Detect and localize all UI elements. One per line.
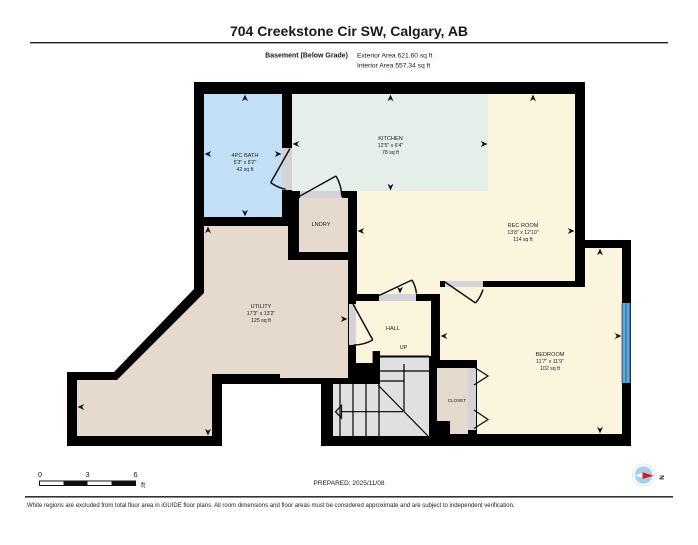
svg-text:13'8" x 12'10": 13'8" x 12'10" xyxy=(507,230,538,236)
svg-text:17'3" x 13'2": 17'3" x 13'2" xyxy=(247,311,276,317)
svg-text:BEDROOM: BEDROOM xyxy=(536,352,565,358)
svg-text:42 sq ft: 42 sq ft xyxy=(236,167,254,173)
svg-text:12'5" x 6'4": 12'5" x 6'4" xyxy=(378,143,404,149)
svg-text:PREPARED: 2025/11/08: PREPARED: 2025/11/08 xyxy=(314,480,385,487)
svg-text:3: 3 xyxy=(85,470,89,479)
svg-text:UTILITY: UTILITY xyxy=(251,304,272,310)
svg-text:HALL: HALL xyxy=(386,326,400,332)
svg-text:CLOSET: CLOSET xyxy=(448,398,467,403)
svg-text:0: 0 xyxy=(38,470,42,479)
svg-text:114 sq ft: 114 sq ft xyxy=(513,237,533,243)
svg-text:102 sq ft: 102 sq ft xyxy=(540,366,560,372)
svg-text:UP: UP xyxy=(400,345,408,351)
svg-text:11'7" x 11'9": 11'7" x 11'9" xyxy=(536,359,564,365)
svg-text:5'3" x 8'2": 5'3" x 8'2" xyxy=(234,160,257,166)
svg-text:704 Creekstone Cir SW, Calgary: 704 Creekstone Cir SW, Calgary, AB xyxy=(230,23,468,39)
svg-text:REC ROOM: REC ROOM xyxy=(508,223,539,229)
svg-text:ft: ft xyxy=(141,481,146,490)
svg-text:LNDRY: LNDRY xyxy=(312,222,331,228)
svg-text:N: N xyxy=(658,475,665,480)
svg-text:125 sq ft: 125 sq ft xyxy=(251,318,271,324)
svg-text:4PC BATH: 4PC BATH xyxy=(232,153,259,159)
svg-text:Basement (Below Grade): Basement (Below Grade) xyxy=(265,53,348,60)
svg-text:Interior Area 557.34 sq ft: Interior Area 557.34 sq ft xyxy=(357,63,430,70)
svg-text:78 sq ft: 78 sq ft xyxy=(382,150,400,156)
svg-text:6: 6 xyxy=(133,470,137,479)
svg-text:Exterior Area 621.60 sq ft: Exterior Area 621.60 sq ft xyxy=(357,53,433,60)
svg-text:White regions are excluded fro: White regions are excluded from total fl… xyxy=(27,503,515,509)
svg-text:KITCHEN: KITCHEN xyxy=(378,136,403,142)
